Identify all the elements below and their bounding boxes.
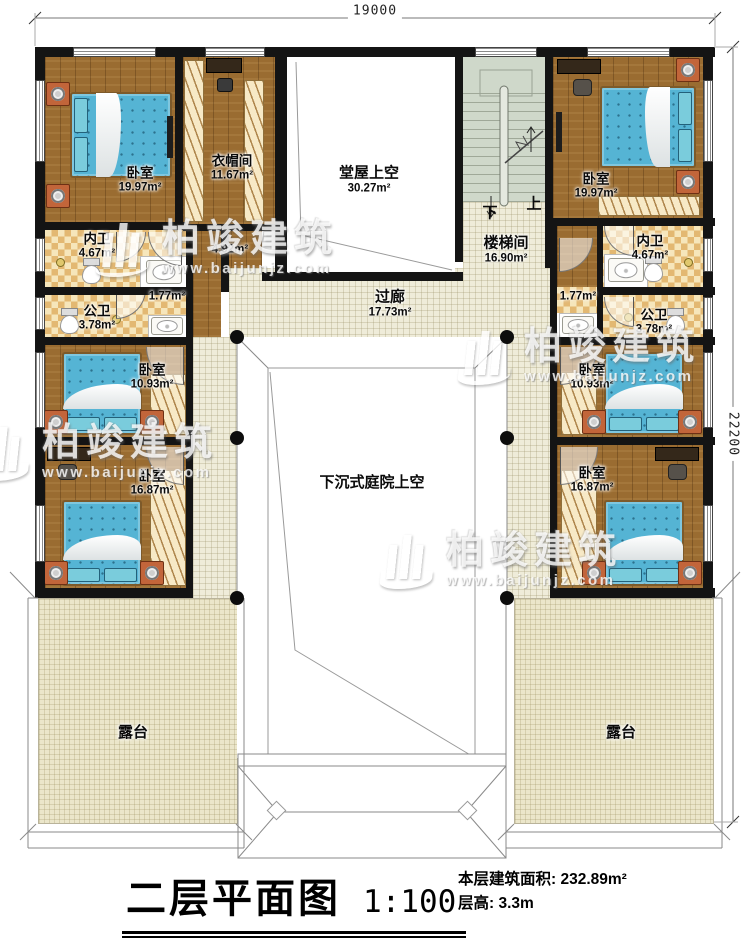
- room-label-bath-inner-left: 内卫4.67m²: [79, 232, 115, 259]
- room-label-bedroom-1093-right: 卧室10.93m²: [571, 363, 614, 390]
- column-dot: [230, 330, 244, 344]
- room-label-bedroom-1687-left: 卧室16.87m²: [131, 469, 174, 496]
- room-label-bath-public-left: 公卫3.78m²: [79, 304, 115, 331]
- room-label-lobby-left: 1.77m²: [149, 291, 185, 304]
- room-label-bedroom-tl: 卧室19.97m²: [119, 166, 162, 193]
- room-label-terrace-right: 露台: [606, 725, 636, 742]
- room-label-hall-void: 堂屋上空30.27m²: [339, 165, 399, 194]
- column-dot: [230, 431, 244, 445]
- room-label-courtyard-void: 下沉式庭院上空: [319, 475, 424, 492]
- drawing-title: 二层平面图: [126, 866, 341, 924]
- column-dot: [500, 431, 514, 445]
- column-dot: [500, 591, 514, 605]
- room-label-stairwell: 楼梯间16.90m²: [483, 235, 528, 264]
- dimension-top: 19000: [348, 4, 402, 19]
- room-label-bath-inner-right: 内卫4.67m²: [632, 234, 668, 261]
- plan-linework: [0, 0, 750, 938]
- room-label-bedroom-1093-left: 卧室10.93m²: [131, 363, 174, 390]
- drawing-info: 本层建筑面积: 232.89m² 层高: 3.3m: [458, 868, 627, 916]
- column-dot: [500, 330, 514, 344]
- room-label-bath-public-right: 公卫3.78m²: [636, 308, 672, 335]
- room-label-cloakroom: 衣帽间11.67m²: [211, 154, 253, 181]
- stair-down-label: 下: [482, 202, 497, 223]
- floor-height-text: 层高: 3.3m: [458, 892, 627, 916]
- floor-area-text: 本层建筑面积: 232.89m²: [458, 868, 627, 892]
- room-label-corridor: 过廊17.73m²: [369, 289, 412, 318]
- stair-up-label: 上: [526, 193, 541, 214]
- room-label-bedroom-tr: 卧室19.97m²: [575, 172, 618, 199]
- drawing-scale: 1:100: [363, 884, 456, 920]
- room-label-terrace-left: 露台: [118, 725, 148, 742]
- room-label-bedroom-1687-right: 卧室16.87m²: [571, 466, 614, 493]
- room-label-hall-492: 4.92m²: [212, 244, 248, 257]
- dimension-right: 22200: [726, 407, 741, 461]
- column-dot: [230, 591, 244, 605]
- drawing-title-group: 二层平面图 1:100: [122, 866, 466, 934]
- floorplan-canvas: 卧室19.97m² 衣帽间11.67m² 堂屋上空30.27m² 楼梯间16.9…: [0, 0, 750, 938]
- room-label-lobby-right: 1.77m²: [560, 291, 596, 304]
